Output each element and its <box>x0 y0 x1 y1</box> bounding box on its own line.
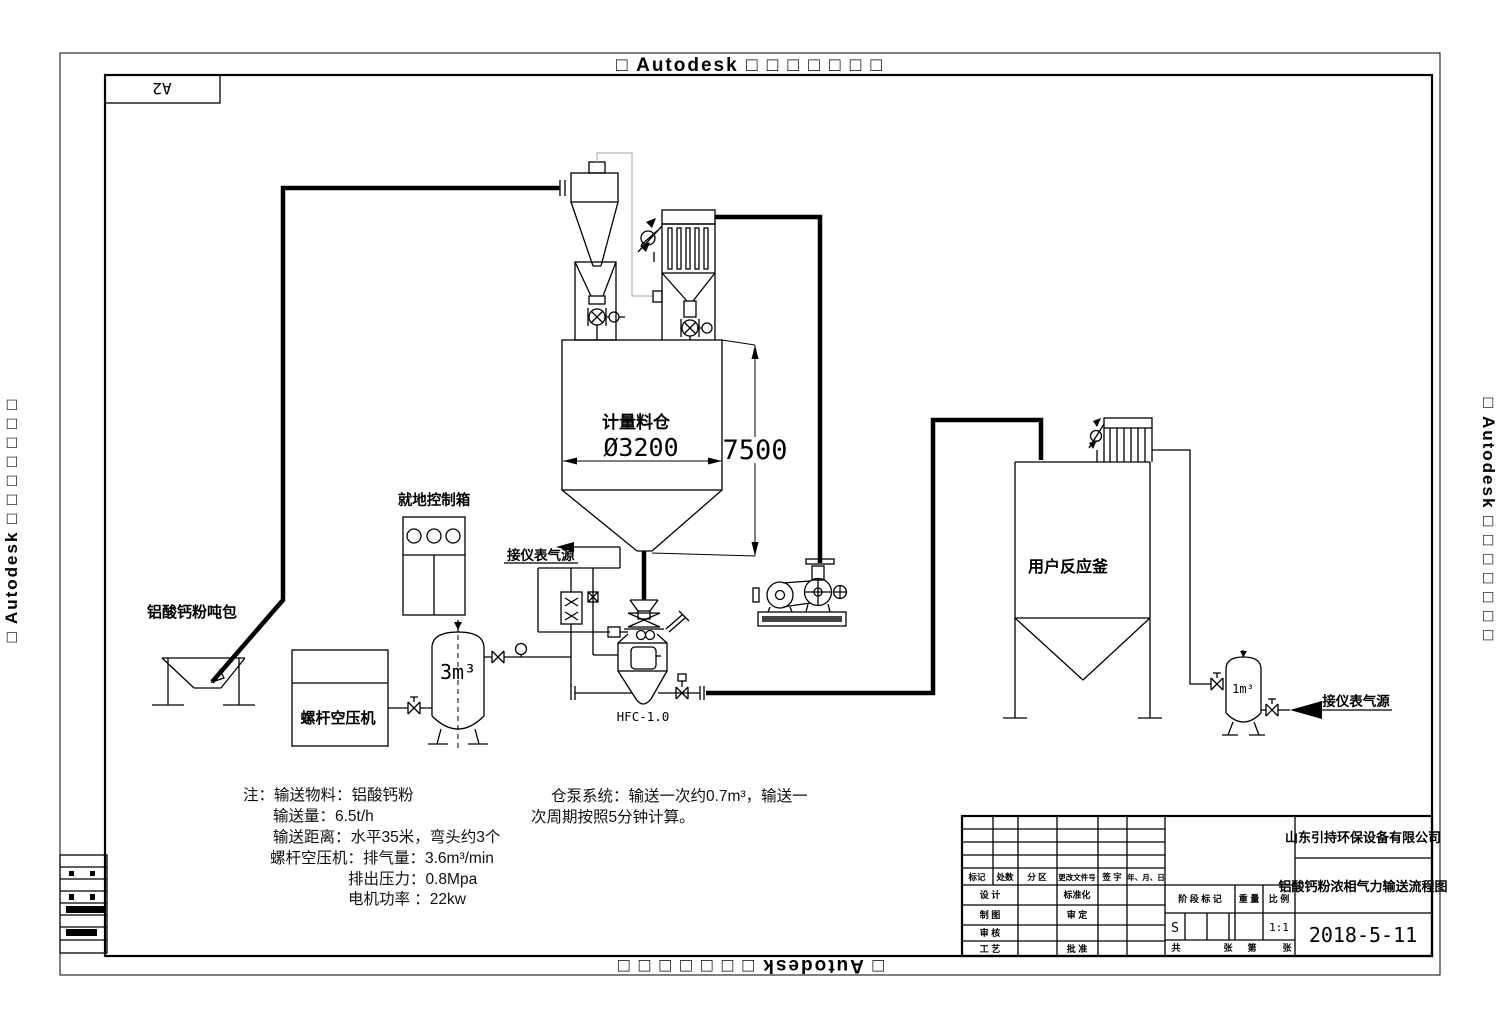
tb-pages-page: 第 <box>1247 942 1256 953</box>
watermark-top: □ Autodesk □ □ □ □ □ □ □ <box>0 55 1500 76</box>
tb-role-review: 审 核 <box>980 927 1001 938</box>
tb-drawing-title: 铝酸钙粉浓相气力输送流程图 <box>1278 879 1447 894</box>
screw-compressor <box>292 650 388 746</box>
instrument-air-right: 接仪表气源 <box>1290 693 1392 719</box>
pump-note-line-2: 次周期按照5分钟计算。 <box>531 805 695 827</box>
tb-header-mark: 标记 <box>967 872 986 882</box>
tb-header-sign: 签 字 <box>1101 872 1122 882</box>
tb-role-process: 工 艺 <box>980 943 1001 954</box>
instrument-air-right-label: 接仪表气源 <box>1322 693 1390 709</box>
filter-pulse-valves <box>638 218 662 262</box>
note-line-6: 电机功率 ：22kw <box>348 887 466 909</box>
sheet-size-label: A2 <box>152 79 171 98</box>
bin-pump-hfc <box>571 600 704 704</box>
tb-company: 山东引持环保设备有限公司 <box>1285 830 1441 845</box>
tb-role-ratify: 批 准 <box>1067 943 1088 954</box>
tb-role-standardize: 标准化 <box>1062 889 1090 900</box>
compressor-tank-line <box>388 697 432 714</box>
note-line-5: 排出压力：0.8Mpa <box>348 867 477 889</box>
silo-dimensions: 7500 计量料仓 Ø3200 <box>563 340 788 556</box>
note-line-1: 注：输送物料：铝酸钙粉 <box>243 783 414 805</box>
tb-role-draft: 制 图 <box>980 909 1001 920</box>
binding-margin-table <box>60 855 107 953</box>
bag-filter <box>638 210 715 340</box>
process-flow-diagram: A2 铝酸钙粉吨包 <box>0 0 1500 1036</box>
tb-header-count: 处数 <box>995 872 1014 882</box>
silo-height-dim: 7500 <box>722 435 787 466</box>
kettle-vent-filter <box>1089 418 1152 462</box>
silo-diameter-dim: Ø3200 <box>603 433 678 462</box>
kettle-to-tank-line <box>1152 450 1211 684</box>
instrument-air-left: 接仪表气源 <box>504 542 620 687</box>
small-air-tank: 1m³ <box>1211 650 1290 735</box>
watermark-left: □ Autodesk □ □ □ □ □ □ □ <box>2 390 24 650</box>
pump-note-line-1: 仓泵系统：输送一次约0.7m³，输送一 <box>551 784 808 806</box>
tb-stage-weight: 重 量 <box>1239 893 1260 904</box>
small-tank-capacity: 1m³ <box>1232 682 1254 696</box>
control-box-label: 就地控制箱 <box>398 491 471 509</box>
tb-pages-total: 共 <box>1171 942 1180 953</box>
tb-pages-sheet-b: 张 <box>1282 942 1292 953</box>
compressor-label: 螺杆空压机 <box>300 709 375 727</box>
cyclone-separator <box>560 162 625 340</box>
tb-role-design: 设 计 <box>980 889 1001 900</box>
tb-date: 2018-5-11 <box>1309 923 1417 947</box>
air-tank-capacity: 3m³ <box>440 660 476 684</box>
tb-pages-sheet-a: 张 <box>1223 942 1233 953</box>
title-block: 标记 处数 分 区 更改文件号 签 字 年、月、日 设 计 制 图 审 核 工 … <box>962 816 1448 956</box>
tb-scale-value: 1:1 <box>1269 921 1289 934</box>
ton-bag-label: 铝酸钙粉吨包 <box>147 603 237 621</box>
feed-conveying-line <box>212 188 560 682</box>
tb-stage-value: S <box>1171 921 1179 936</box>
cad-drawing-sheet: A2 铝酸钙粉吨包 <box>0 0 1500 1036</box>
reaction-kettle <box>1003 462 1162 718</box>
tb-header-ymd: 年、月、日 <box>1127 872 1165 882</box>
cyclone-vent-line <box>597 153 654 296</box>
note-line-2: 输送量：6.5t/h <box>273 804 374 826</box>
air-receiver-tank: 3m³ <box>428 620 571 748</box>
tb-stage-scale: 比 例 <box>1269 893 1290 904</box>
tb-header-doc-no: 更改文件号 <box>1058 872 1096 882</box>
watermark-right: □ Autodesk □ □ □ □ □ □ □ <box>1476 390 1498 650</box>
pump-model-label: HFC-1.0 <box>617 709 670 724</box>
note-line-4: 螺杆空压机：排气量：3.6m³/min <box>270 846 494 868</box>
watermark-bottom: □ Autodesk □ □ □ □ □ □ □ <box>0 955 1500 976</box>
filter-air-line <box>715 217 820 563</box>
tb-stage-header: 阶 段 标 记 <box>1178 893 1222 904</box>
reactor-label: 用户反应釜 <box>1028 557 1109 576</box>
tb-role-approve: 审 定 <box>1067 909 1089 920</box>
drawing-frame: A2 <box>60 53 1440 975</box>
local-control-box <box>403 517 465 615</box>
ton-bag-hopper <box>152 658 255 705</box>
silo-name-label: 计量料仓 <box>602 412 671 432</box>
blower-pump-set <box>753 566 847 626</box>
note-line-3: 输送距离：水平35米，弯头约3个 <box>273 825 500 847</box>
tb-header-zone: 分 区 <box>1027 872 1047 882</box>
